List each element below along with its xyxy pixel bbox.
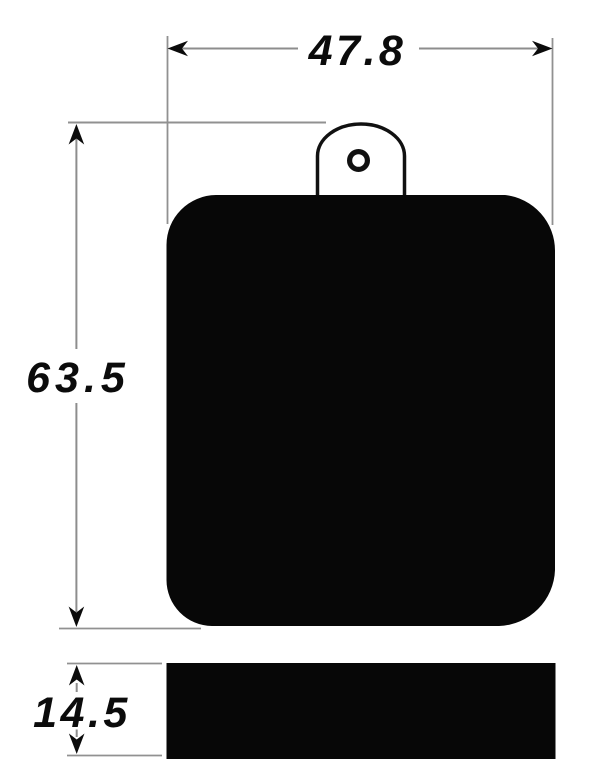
svg-text:63.5: 63.5 xyxy=(26,354,130,402)
svg-text:14.5: 14.5 xyxy=(33,689,131,737)
svg-text:47.8: 47.8 xyxy=(308,27,407,75)
